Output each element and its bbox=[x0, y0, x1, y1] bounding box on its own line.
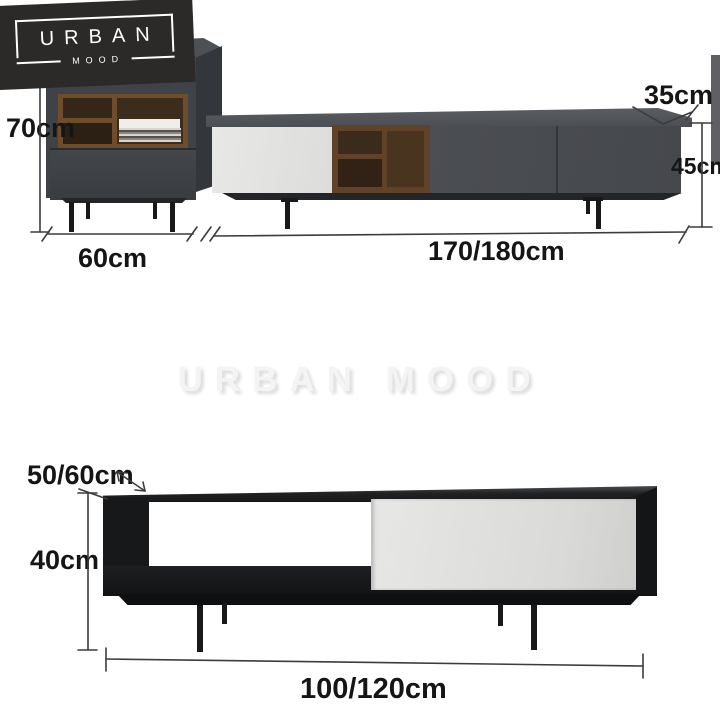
cabinet-leg bbox=[153, 202, 157, 219]
cabinet-leg bbox=[86, 202, 90, 219]
table-leg bbox=[531, 605, 537, 650]
table-leg bbox=[498, 603, 503, 626]
table-white-sliding-door bbox=[371, 499, 636, 590]
console-shelf-cell bbox=[338, 159, 382, 187]
table-leg bbox=[222, 603, 227, 624]
table-plinth bbox=[117, 594, 641, 605]
console-shelf-cell bbox=[387, 131, 424, 187]
cabinet-drawer-front bbox=[50, 148, 196, 200]
books-decor bbox=[119, 119, 180, 128]
logo-rule-right bbox=[131, 56, 175, 60]
brand-logo-inner: URBAN MOOD bbox=[15, 14, 175, 69]
table-depth-label: 50/60cm bbox=[27, 460, 134, 491]
watermark-text: URBAN MOOD bbox=[140, 360, 580, 400]
cabinet-leg bbox=[170, 202, 175, 232]
console-white-door bbox=[212, 127, 332, 193]
brand-name-secondary: MOOD bbox=[60, 53, 131, 66]
arrowhead bbox=[135, 490, 145, 491]
brand-name-primary: URBAN bbox=[29, 23, 160, 51]
console-leg bbox=[285, 202, 290, 229]
table-width-label: 100/120cm bbox=[300, 673, 447, 706]
tick bbox=[42, 227, 52, 241]
console-height-label: 45cm bbox=[671, 153, 720, 180]
console-shelf-cell bbox=[338, 131, 382, 154]
console-top-slab bbox=[206, 108, 692, 127]
break-mark bbox=[210, 227, 220, 241]
tick bbox=[187, 227, 197, 241]
cabinet-width-label: 60cm bbox=[78, 243, 147, 274]
books-decor bbox=[119, 128, 181, 142]
table-height-label: 40cm bbox=[30, 545, 99, 576]
break-mark bbox=[201, 227, 211, 241]
console-width-label: 170/180cm bbox=[428, 236, 565, 267]
console-leg bbox=[586, 200, 590, 214]
cabinet-height-label: 70cm bbox=[6, 113, 75, 144]
console-depth-label: 35cm bbox=[644, 80, 713, 111]
product-dimension-diagram: URBAN MOOD bbox=[0, 0, 720, 712]
tick bbox=[679, 226, 689, 243]
console-leg bbox=[596, 200, 601, 229]
brand-logo: URBAN MOOD bbox=[0, 0, 196, 90]
cabinet-leg bbox=[69, 202, 74, 232]
console-door-seam bbox=[556, 126, 558, 193]
table-width-line bbox=[106, 659, 643, 666]
arrowhead bbox=[143, 482, 145, 491]
table-leg bbox=[197, 605, 203, 652]
brand-logo-frame: URBAN bbox=[15, 14, 174, 59]
logo-rule-left bbox=[17, 60, 61, 64]
table-right-panel bbox=[636, 487, 657, 594]
